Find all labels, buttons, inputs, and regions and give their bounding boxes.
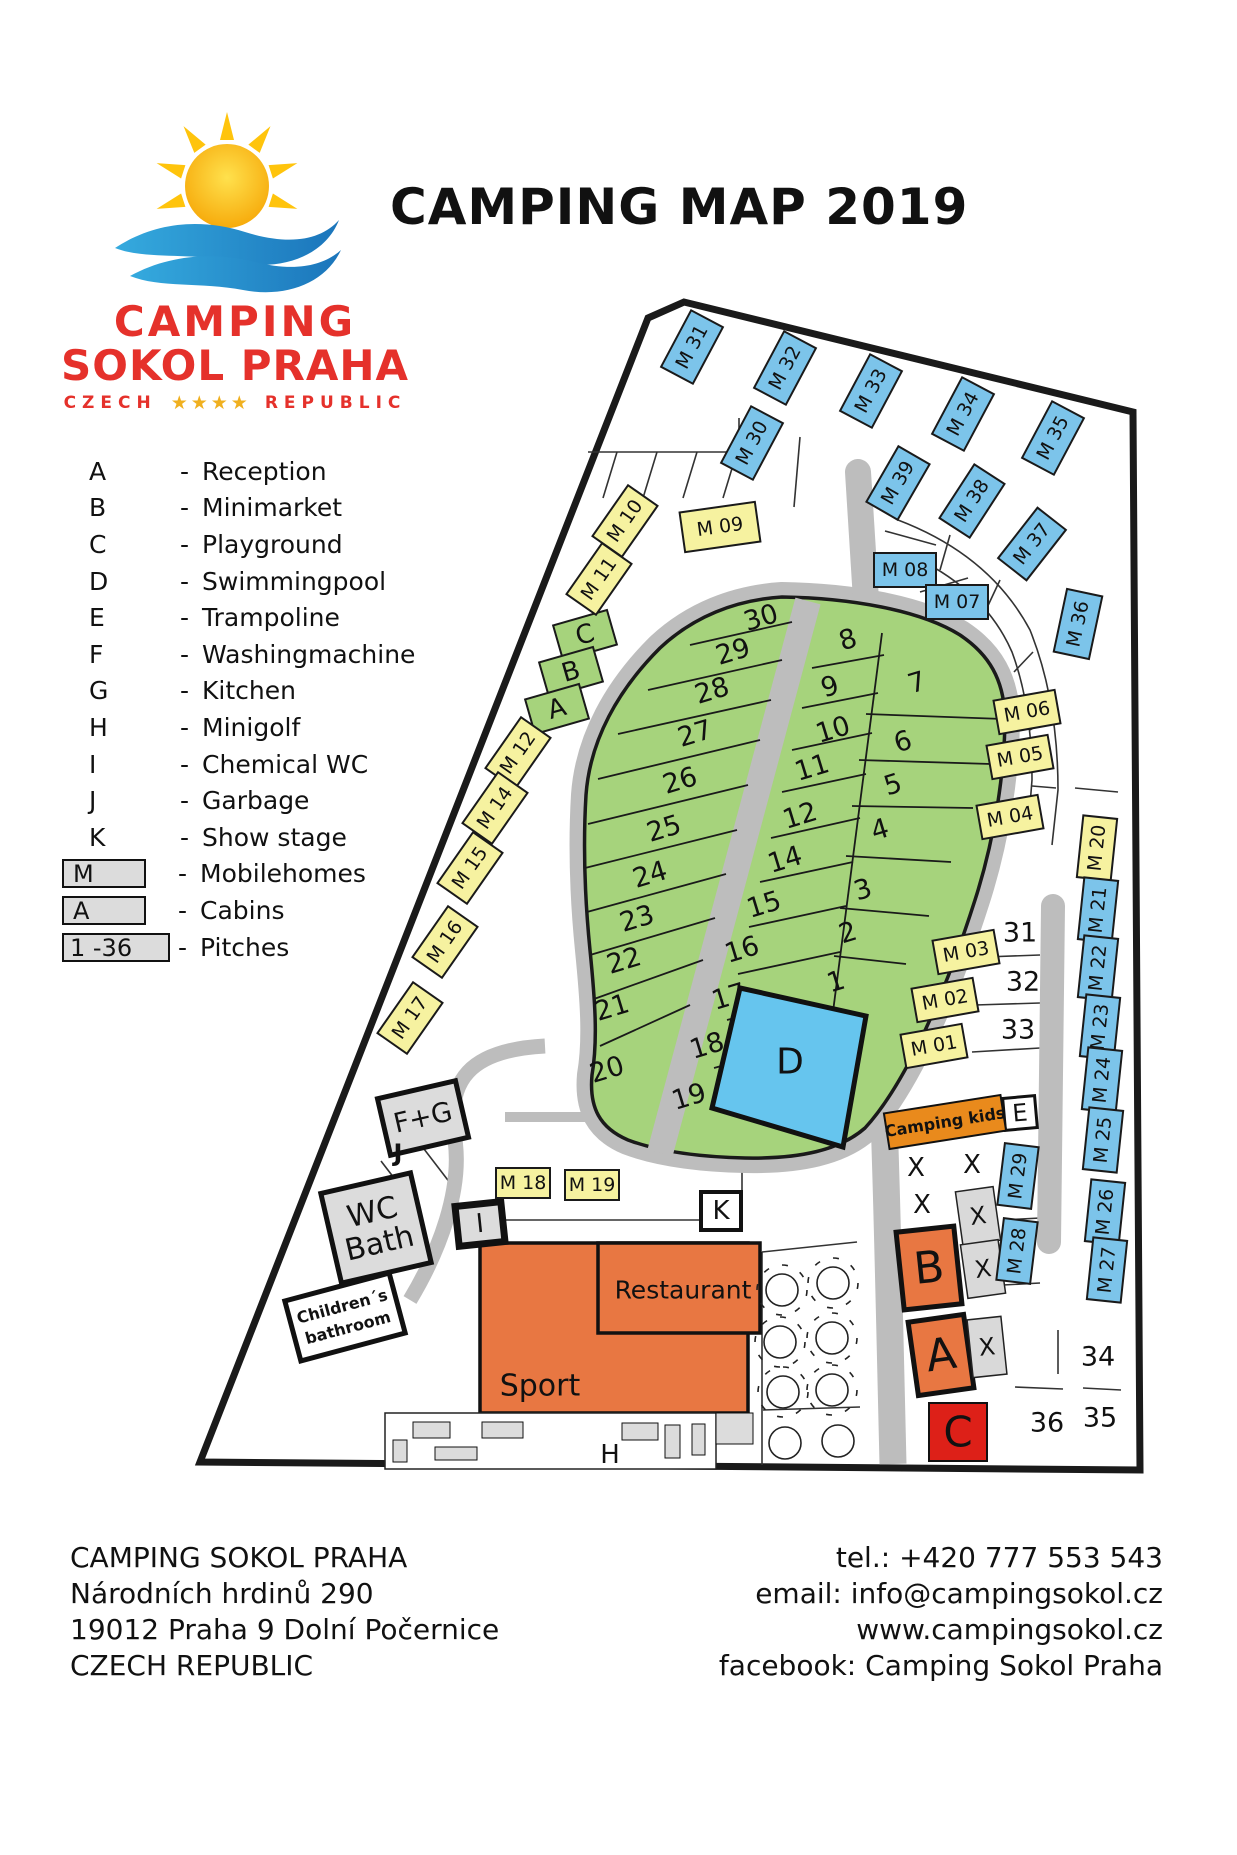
svg-text:M 19: M 19 (569, 1174, 616, 1196)
mobilehome-m20: M 20 (1077, 815, 1117, 880)
footer-address: CAMPING SOKOL PRAHA Národních hrdinů 290… (70, 1540, 499, 1684)
mobilehome-m08: M 08 (874, 553, 936, 587)
mobilehome-m25: M 25 (1083, 1107, 1123, 1172)
trampoline-box: E (1003, 1096, 1038, 1131)
pitch-31: 31 (1003, 918, 1037, 949)
x-mark: X (913, 1190, 931, 1220)
x-mark: X (963, 1150, 981, 1180)
svg-text:M 08: M 08 (882, 559, 929, 581)
pitch-36: 36 (1030, 1408, 1064, 1439)
mobilehome-m24: M 24 (1082, 1047, 1122, 1112)
svg-text:M 07: M 07 (934, 591, 981, 613)
cabin-x-box: X (955, 1187, 1000, 1246)
pitch-32: 32 (1006, 967, 1040, 998)
pitch-35: 35 (1083, 1403, 1117, 1434)
footer-email: email: info@campingsokol.cz (719, 1576, 1163, 1612)
east-road (1049, 906, 1053, 1242)
restaurant-label: Restaurant (615, 1276, 752, 1305)
footer-city: 19012 Praha 9 Dolní Počernice (70, 1612, 499, 1648)
footer-phone: tel.: +420 777 553 543 (719, 1540, 1163, 1576)
x-mark: X (907, 1153, 925, 1183)
svg-text:C: C (943, 1408, 972, 1457)
show-stage-box: K (701, 1192, 741, 1230)
minigolf-area: H (385, 1413, 753, 1470)
svg-text:K: K (712, 1196, 730, 1226)
playground-building: C (929, 1403, 987, 1461)
footer-facebook: facebook: Camping Sokol Praha (719, 1648, 1163, 1684)
sport-label: Sport (500, 1369, 581, 1404)
mobilehome-m19: M 19 (565, 1170, 619, 1200)
minimarket-building: B (896, 1226, 962, 1310)
svg-text:X: X (977, 1332, 996, 1362)
reception-building: A (908, 1314, 974, 1395)
swimmingpool-label: D (776, 1042, 804, 1083)
mobilehome-m21: M 21 (1078, 877, 1118, 942)
mobilehome-m28: M 28 (996, 1218, 1037, 1284)
svg-text:B: B (911, 1241, 946, 1295)
mobilehome-m29: M 29 (997, 1143, 1038, 1209)
footer-country: CZECH REPUBLIC (70, 1648, 499, 1684)
pitch-33: 33 (1001, 1015, 1035, 1046)
minigolf-label: H (600, 1440, 620, 1470)
mobilehome-m27: M 27 (1087, 1237, 1127, 1302)
svg-text:E: E (1011, 1098, 1029, 1127)
footer-street: Národních hrdinů 290 (70, 1576, 499, 1612)
chemical-wc-box: I (455, 1202, 505, 1247)
mobilehome-m07: M 07 (926, 585, 988, 619)
mobilehome-m18: M 18 (496, 1168, 550, 1198)
footer-website: www.campingsokol.cz (719, 1612, 1163, 1648)
cabin-x-box: X (967, 1316, 1007, 1377)
footer-contacts: tel.: +420 777 553 543 email: info@campi… (719, 1540, 1163, 1684)
mobilehome-m26: M 26 (1085, 1179, 1125, 1244)
garbage-label: J (392, 1139, 403, 1167)
pitch-34: 34 (1081, 1342, 1115, 1373)
mobilehome-m22: M 22 (1078, 935, 1118, 1000)
entrance-road (858, 472, 866, 600)
footer-company: CAMPING SOKOL PRAHA (70, 1540, 499, 1576)
svg-text:M 18: M 18 (500, 1172, 547, 1194)
wc-bath-box: WC Bath (321, 1173, 431, 1283)
